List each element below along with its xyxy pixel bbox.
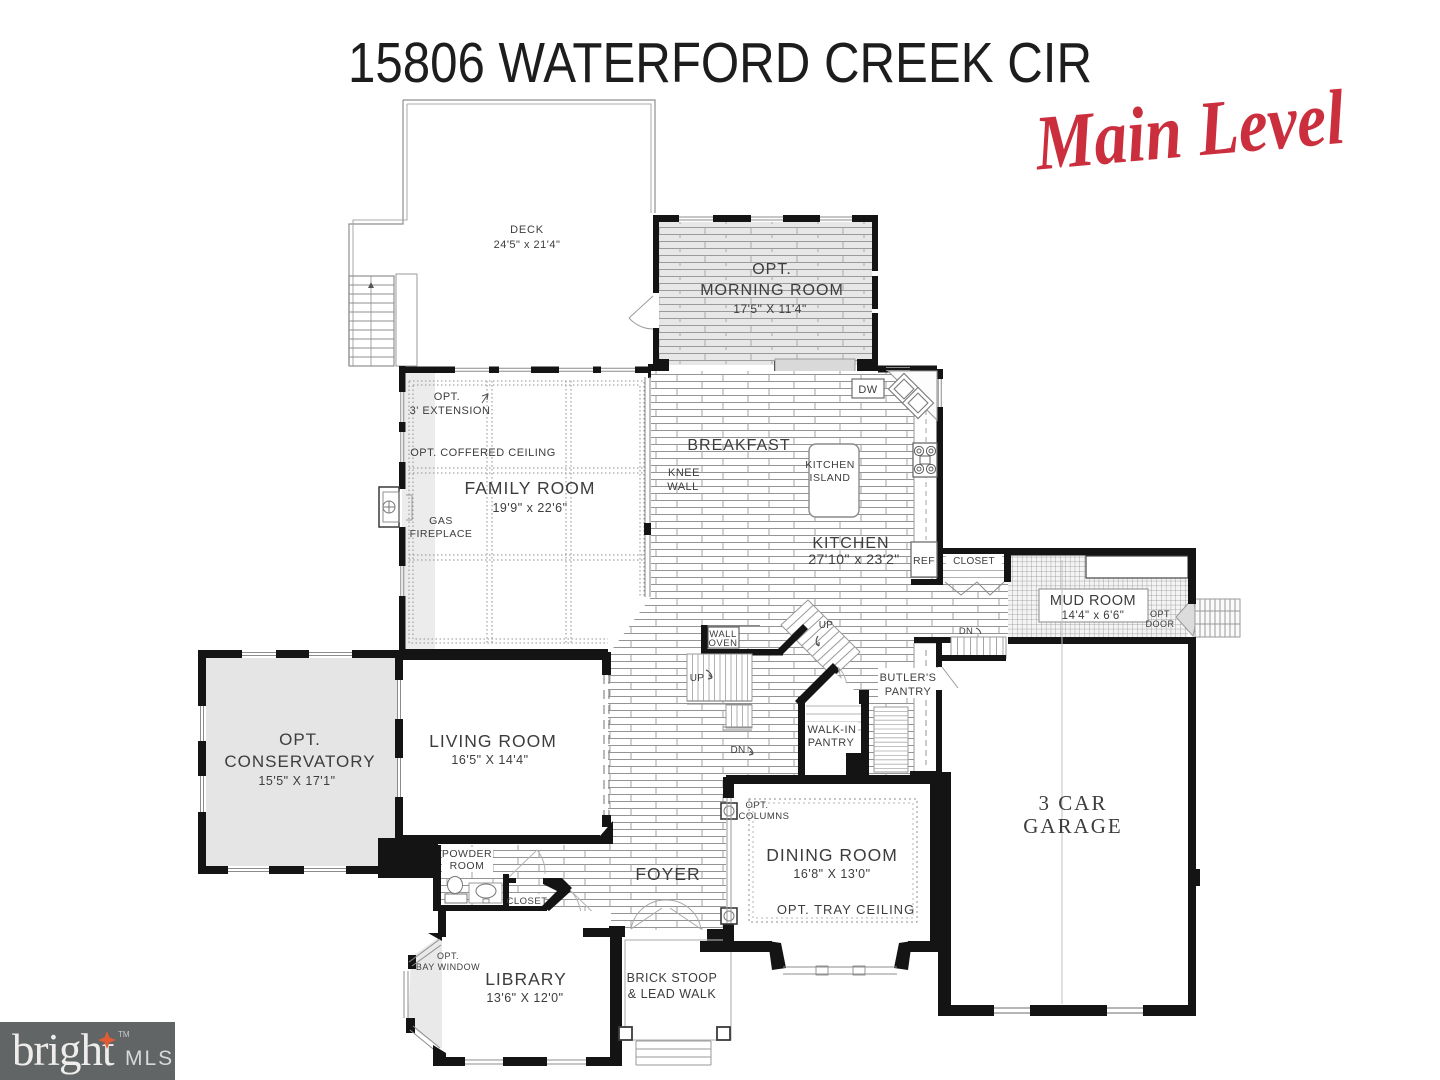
svg-text:KITCHEN: KITCHEN [805,459,855,471]
svg-text:REF: REF [913,555,935,567]
svg-text:PANTRY: PANTRY [885,686,932,698]
svg-text:14'4" x 6'6": 14'4" x 6'6" [1062,610,1125,622]
svg-text:CONSERVATORY: CONSERVATORY [224,752,375,771]
svg-text:16'5" X 14'4": 16'5" X 14'4" [451,753,528,767]
svg-text:3 CAR: 3 CAR [1039,791,1108,815]
svg-text:OPT.: OPT. [745,800,768,811]
svg-text:ISLAND: ISLAND [810,472,851,484]
svg-text:OPT. COFFERED CEILING: OPT. COFFERED CEILING [410,447,556,459]
svg-text:OVEN: OVEN [709,638,738,649]
svg-text:WALK-IN: WALK-IN [808,724,857,736]
svg-text:GAS: GAS [429,515,453,527]
svg-text:MLS: MLS [125,1047,174,1070]
svg-text:WALL: WALL [667,481,699,493]
svg-text:24'5" x 21'4": 24'5" x 21'4" [494,239,561,251]
svg-text:13'6" X 12'0": 13'6" X 12'0" [486,991,563,1005]
svg-text:FOYER: FOYER [635,864,700,884]
svg-text:DN: DN [730,745,745,756]
svg-text:TM: TM [118,1030,130,1039]
svg-text:LIVING ROOM: LIVING ROOM [429,731,557,751]
svg-text:BRICK STOOP: BRICK STOOP [627,971,718,985]
svg-text:OPT.: OPT. [752,261,792,278]
svg-text:17'5" X 11'4": 17'5" X 11'4" [733,302,806,316]
svg-text:DECK: DECK [510,224,544,236]
svg-text:OPT.: OPT. [434,391,460,403]
svg-text:PANTRY: PANTRY [808,737,855,749]
svg-text:19'9" x 22'6": 19'9" x 22'6" [492,501,567,515]
svg-text:LIBRARY: LIBRARY [485,969,567,989]
svg-text:GARAGE: GARAGE [1023,814,1123,838]
svg-text:MORNING ROOM: MORNING ROOM [700,282,844,299]
svg-text:OPT.: OPT. [279,730,321,749]
svg-text:DOOR: DOOR [1146,619,1175,629]
svg-text:OPT.: OPT. [437,951,459,961]
svg-text:15806 WATERFORD CREEK CIR: 15806 WATERFORD CREEK CIR [348,31,1092,95]
svg-text:FAMILY ROOM: FAMILY ROOM [465,478,596,498]
svg-text:KITCHEN: KITCHEN [812,535,889,552]
svg-text:FIREPLACE: FIREPLACE [410,528,473,540]
svg-text:KNEE: KNEE [668,467,700,479]
svg-text:POWDER: POWDER [442,848,492,860]
svg-text:OPT: OPT [1150,609,1170,619]
svg-text:BAY WINDOW: BAY WINDOW [416,962,480,972]
svg-text:27'10" x 23'2": 27'10" x 23'2" [808,551,900,567]
svg-text:15'5" X 17'1": 15'5" X 17'1" [258,774,335,788]
svg-text:& LEAD WALK: & LEAD WALK [628,987,717,1001]
svg-text:CLOSET: CLOSET [506,896,547,907]
svg-text:CLOSET: CLOSET [953,556,995,567]
svg-text:BUTLER'S: BUTLER'S [880,672,937,684]
svg-text:16'8" X 13'0": 16'8" X 13'0" [793,867,870,881]
svg-text:BREAKFAST: BREAKFAST [687,437,790,454]
svg-text:ROOM: ROOM [450,860,485,872]
svg-text:UP: UP [690,673,705,684]
svg-text:MUD ROOM: MUD ROOM [1050,593,1136,609]
svg-text:DINING ROOM: DINING ROOM [766,845,898,865]
svg-text:OPT. TRAY CEILING: OPT. TRAY CEILING [777,902,915,917]
svg-text:3' EXTENSION: 3' EXTENSION [410,405,491,417]
svg-text:COLUMNS: COLUMNS [738,811,789,822]
svg-text:DW: DW [858,384,877,396]
svg-text:DN: DN [959,626,973,637]
svg-text:UP: UP [819,620,834,631]
svg-text:bright: bright [12,1025,115,1075]
